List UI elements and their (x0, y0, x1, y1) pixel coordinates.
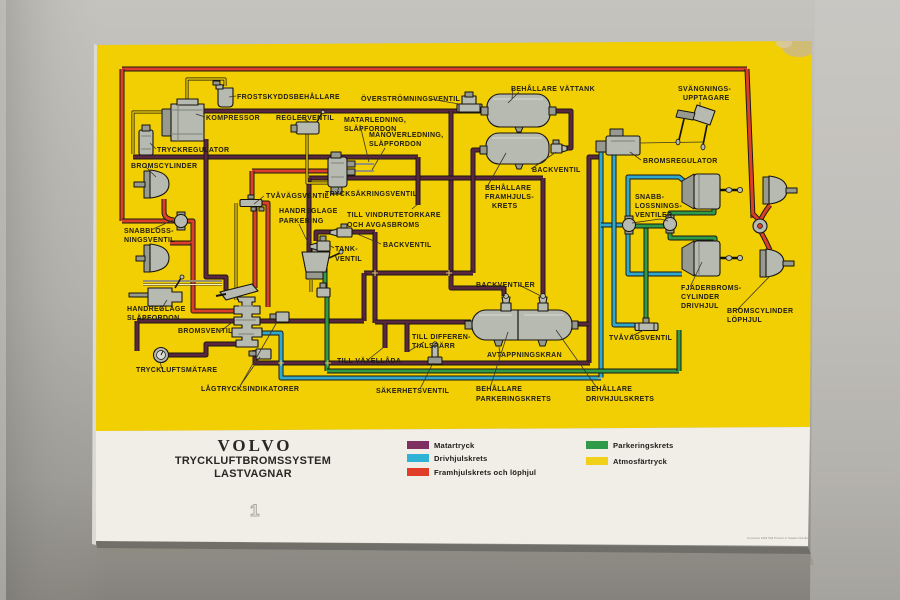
svg-text:LÖPHJUL: LÖPHJUL (727, 315, 762, 324)
svg-text:HANDREGLAGE: HANDREGLAGE (279, 208, 338, 215)
svg-text:SNABB-: SNABB- (635, 194, 665, 201)
svg-text:BACKVENTILER: BACKVENTILER (476, 282, 535, 289)
svg-text:FRAMHJULS-: FRAMHJULS- (485, 194, 534, 201)
svg-text:Drivhjulskrets: Drivhjulskrets (434, 454, 487, 463)
svg-text:BROMSCYLINDER: BROMSCYLINDER (131, 163, 197, 170)
svg-text:1: 1 (250, 501, 259, 520)
svg-text:SVÄNGNINGS-: SVÄNGNINGS- (678, 85, 732, 93)
svg-text:Matartryck: Matartryck (434, 441, 475, 450)
svg-text:KRETS: KRETS (492, 203, 517, 210)
svg-text:VENTILER: VENTILER (635, 212, 672, 219)
svg-text:TILL DIFFEREN-: TILL DIFFEREN- (412, 334, 471, 341)
svg-text:TILL VINDRUTETORKARE: TILL VINDRUTETORKARE (347, 212, 441, 219)
svg-text:KOMPRESSOR: KOMPRESSOR (206, 115, 260, 122)
svg-text:NINGSVENTIL: NINGSVENTIL (124, 237, 175, 244)
svg-text:VENTIL: VENTIL (335, 256, 362, 263)
svg-text:TIALSPÄRR: TIALSPÄRR (412, 342, 455, 350)
svg-text:REGLERVENTIL: REGLERVENTIL (276, 115, 335, 122)
svg-text:SNABBLOSS-: SNABBLOSS- (124, 228, 174, 235)
svg-text:OCH AVGASBROMS: OCH AVGASBROMS (347, 222, 420, 229)
svg-text:BACKVENTIL: BACKVENTIL (383, 242, 432, 249)
svg-text:BROMSCYLINDER: BROMSCYLINDER (727, 308, 793, 315)
svg-text:Atmosfärtryck: Atmosfärtryck (613, 457, 668, 466)
svg-text:TANK-: TANK- (335, 246, 358, 253)
svg-text:UPPTAGARE: UPPTAGARE (683, 95, 730, 102)
svg-text:SÄKERHETSVENTIL: SÄKERHETSVENTIL (376, 387, 450, 395)
svg-text:PARKERINGSKRETS: PARKERINGSKRETS (476, 396, 551, 403)
svg-text:CYLINDER: CYLINDER (681, 294, 720, 301)
svg-text:SLÄPFORDON: SLÄPFORDON (127, 314, 180, 322)
svg-text:AVTAPPNINGSKRAN: AVTAPPNINGSKRAN (487, 352, 562, 359)
svg-text:MATARLEDNING,: MATARLEDNING, (344, 117, 406, 124)
svg-text:BACKVENTIL: BACKVENTIL (532, 167, 581, 174)
svg-text:Cronquist 1966 548 Printed in: Cronquist 1966 548 Printed in Sweden Rön… (747, 536, 809, 540)
svg-text:MANÖVERLEDNING,: MANÖVERLEDNING, (369, 130, 443, 139)
svg-text:LOSSNINGS-: LOSSNINGS- (635, 203, 682, 210)
svg-text:BEHÅLLARE: BEHÅLLARE (485, 183, 531, 192)
svg-text:BROMSREGULATOR: BROMSREGULATOR (643, 158, 718, 165)
svg-text:BEHÅLLARE: BEHÅLLARE (586, 384, 632, 393)
svg-text:FJÄDERBROMS-: FJÄDERBROMS- (681, 284, 742, 292)
svg-text:VOLVO: VOLVO (217, 436, 292, 455)
svg-text:BEHÅLLARE VÄTTANK: BEHÅLLARE VÄTTANK (511, 84, 595, 93)
svg-text:BROMSVENTIL: BROMSVENTIL (178, 328, 233, 335)
svg-text:DRIVHJULSKRETS: DRIVHJULSKRETS (586, 396, 654, 403)
svg-text:SLÄPFORDON: SLÄPFORDON (369, 140, 422, 148)
svg-text:Framhjulskrets och löphjul: Framhjulskrets och löphjul (434, 468, 536, 477)
svg-text:BEHÅLLARE: BEHÅLLARE (476, 384, 522, 393)
svg-text:TRYCKLUFTBROMSSYSTEM: TRYCKLUFTBROMSSYSTEM (175, 455, 331, 467)
svg-text:TVÅVÄGSVENTIL: TVÅVÄGSVENTIL (609, 333, 673, 342)
svg-text:Parkeringskrets: Parkeringskrets (613, 441, 673, 450)
svg-text:HANDREGLAGE: HANDREGLAGE (127, 306, 186, 313)
svg-text:DRIVHJUL: DRIVHJUL (681, 303, 719, 310)
svg-text:TRYCKREGULATOR: TRYCKREGULATOR (157, 147, 229, 154)
svg-text:TILL VÄXELLÅDA: TILL VÄXELLÅDA (337, 356, 401, 365)
svg-text:FROSTSKYDDSBEHÅLLARE: FROSTSKYDDSBEHÅLLARE (237, 92, 340, 101)
svg-text:LÅGTRYCKSINDIKATORER: LÅGTRYCKSINDIKATORER (201, 384, 299, 393)
svg-text:TRYCKLUFTSMÄTARE: TRYCKLUFTSMÄTARE (136, 366, 217, 374)
svg-text:TVÅVÄGSVENTIL: TVÅVÄGSVENTIL (266, 191, 330, 200)
svg-text:TRYCKSÄKRINGSVENTIL: TRYCKSÄKRINGSVENTIL (325, 190, 418, 198)
svg-text:PARKERING: PARKERING (279, 218, 324, 225)
svg-text:LASTVAGNAR: LASTVAGNAR (214, 468, 292, 480)
